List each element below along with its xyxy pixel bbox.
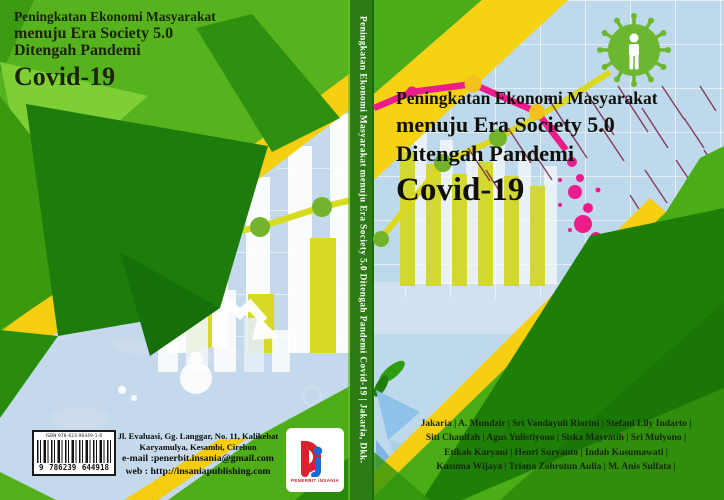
publisher-info: Jl. Evaluasi, Gg. Langgar, No. 11, Kalik… <box>106 431 290 478</box>
book-cover: Peningkatan Ekonomi Masyarakat menuju Er… <box>0 0 724 500</box>
barcode-digit-group-3: 644918 <box>82 463 109 472</box>
publisher-address-line-2: Karyamulya, Kesambi, Cirebon <box>106 442 290 453</box>
publisher-web: web : http://insaniapublishing.com <box>106 466 290 479</box>
barcode-digit-group-1: 9 <box>39 463 44 472</box>
spine-title: Peningkatan Ekonomi Masyarakat menuju Er… <box>351 0 374 500</box>
authors-list: Jakaria | A. Mundzir | Sri Vandayuli Rio… <box>398 417 714 475</box>
front-title-line-2: menuju Era Society 5.0 <box>396 110 718 139</box>
back-title-line-3: Ditengah Pandemi <box>14 42 294 60</box>
authors-line-3: Etikah Karyani | Henri Suryanto | Indah … <box>398 446 714 460</box>
barcode-digit-group-2: 786239 <box>49 463 76 472</box>
front-title-line-1: Peningkatan Ekonomi Masyarakat <box>396 86 718 110</box>
back-title-line-2: menuju Era Society 5.0 <box>14 25 294 42</box>
back-title-line-1: Peningkatan Ekonomi Masyarakat <box>14 8 294 25</box>
barcode-digits: 9 786239 644918 <box>37 463 111 472</box>
publisher-logo-icon <box>290 431 340 477</box>
back-cover-title: Peningkatan Ekonomi Masyarakat menuju Er… <box>14 8 294 92</box>
isbn-barcode: ISBN 978-623-96449-1-8 9 786239 644918 <box>32 430 116 476</box>
back-title-line-4: Covid-19 <box>14 62 294 92</box>
publisher-email: e-mail :penerbit.insania@gmail.com <box>106 453 290 466</box>
authors-line-1: Jakaria | A. Mundzir | Sri Vandayuli Rio… <box>398 417 714 431</box>
front-title-line-4: Covid-19 <box>396 170 718 210</box>
front-title-line-3: Ditengah Pandemi <box>396 139 718 168</box>
publisher-address-line-1: Jl. Evaluasi, Gg. Langgar, No. 11, Kalik… <box>106 431 290 442</box>
front-cover-title: Peningkatan Ekonomi Masyarakat menuju Er… <box>396 86 718 210</box>
barcode-bars <box>37 440 111 463</box>
publisher-logo: PENERBIT INSANIA <box>286 428 344 492</box>
authors-line-2: Siti Chanifah | Agus Yulistiyono | Siska… <box>398 431 714 445</box>
authors-line-4: Kusuma Wijaya | Triana Zohrotun Aulia | … <box>398 460 714 474</box>
isbn-label: ISBN 978-623-96449-1-8 <box>37 433 111 439</box>
spine-title-text: Peningkatan Ekonomi Masyarakat menuju Er… <box>358 0 368 500</box>
publisher-logo-text: PENERBIT INSANIA <box>291 478 339 483</box>
